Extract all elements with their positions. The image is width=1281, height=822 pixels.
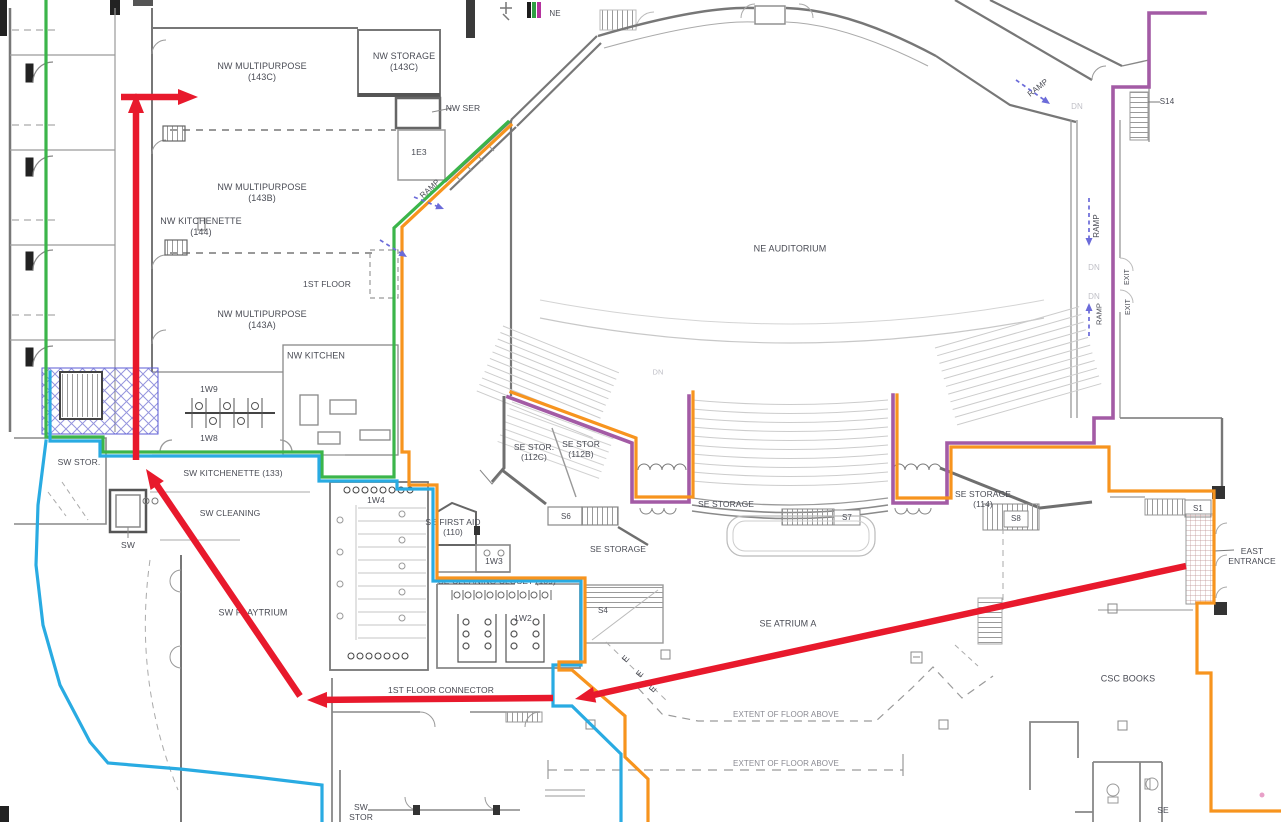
room-labels-layer: NENW MULTIPURPOSE (143C)NW STORAGE (143C…: [0, 0, 1281, 822]
label-se-storage-114: SE STORAGE (114): [955, 489, 1011, 509]
label-nw-storage-143c: NW STORAGE (143C): [373, 51, 435, 73]
label-extent-of-floor-above-upper: EXTENT OF FLOOR ABOVE: [733, 710, 839, 720]
label-nw-kitchenette-144: NW KITCHENETTE (144): [160, 216, 241, 238]
label-se-storage-south: SE STORAGE: [590, 544, 646, 554]
label-room-1w9: 1W9: [200, 384, 218, 394]
label-sw-cleaning: SW CLEANING: [200, 508, 261, 518]
label-east-entrance: EAST ENTRANCE: [1228, 546, 1276, 566]
label-room-1e3: 1E3: [411, 147, 426, 157]
label-s8: S8: [1011, 514, 1021, 524]
label-dn-east-2: DN: [1088, 292, 1100, 302]
label-nw-ser: NW SER: [446, 103, 481, 113]
label-sw-stor-bottom: SW STOR: [349, 802, 373, 822]
label-exit-lower: EXIT: [1125, 299, 1133, 315]
label-sw-kitchenette-133: SW KITCHENETTE (133): [183, 468, 282, 478]
label-first-floor-connector: 1ST FLOOR CONNECTOR: [388, 685, 494, 695]
label-room-1w8: 1W8: [200, 433, 218, 443]
label-grid-e-1: E: [620, 653, 632, 665]
label-room-1w3: 1W3: [485, 556, 503, 566]
label-dn-east-1: DN: [1088, 263, 1100, 273]
label-room-1w4: 1W4: [367, 495, 385, 505]
label-s14: S14: [1160, 97, 1175, 107]
label-se-storage-mid: SE STORAGE: [698, 499, 754, 509]
label-s1: S1: [1193, 504, 1203, 514]
label-nw-multipurpose-143a: NW MULTIPURPOSE (143A): [217, 309, 306, 331]
label-s4: S4: [598, 606, 608, 616]
label-sw-elevator: SW: [121, 540, 135, 550]
label-nw-kitchen: NW KITCHEN: [287, 351, 345, 362]
label-ramp-east-lower: RAMP: [1095, 303, 1104, 325]
label-grid-e-3: E: [647, 683, 659, 695]
label-nw-multipurpose-143c: NW MULTIPURPOSE (143C): [217, 61, 306, 83]
label-csc-books: CSC BOOKS: [1101, 674, 1155, 685]
label-nw-multipurpose-143b: NW MULTIPURPOSE (143B): [217, 182, 306, 204]
label-s7: S7: [842, 513, 852, 523]
label-ramp-nw: RAMP: [418, 178, 442, 201]
label-dn-ne: DN: [1071, 102, 1083, 112]
label-se-stor-112c: SE STOR. (112C): [514, 442, 554, 462]
label-room-1w2: 1W2: [514, 613, 532, 623]
floor-plan-canvas: NENW MULTIPURPOSE (143C)NW STORAGE (143C…: [0, 0, 1281, 822]
label-dn-auditorium: DN: [652, 368, 663, 377]
label-se-atrium-a: SE ATRIUM A: [760, 619, 817, 630]
label-se-bottom: SE: [1157, 805, 1169, 815]
label-se-stor-112b: SE STOR (112B): [562, 439, 600, 459]
label-ne-auditorium: NE AUDITORIUM: [754, 244, 827, 255]
label-ramp-ne: RAMP: [1026, 77, 1050, 99]
label-se-first-aid-110: SE FIRST AID (110): [425, 517, 480, 537]
label-s6: S6: [561, 512, 571, 522]
label-extent-of-floor-above-lower: EXTENT OF FLOOR ABOVE: [733, 759, 839, 769]
label-first-floor: 1ST FLOOR: [303, 279, 351, 289]
label-se-cleaning-closet-109: SE CLEANING CLOSET (109): [438, 576, 556, 586]
label-ramp-east-upper: RAMP: [1092, 214, 1102, 238]
label-sw-playtrium: SW PLAYTRIUM: [218, 608, 287, 619]
label-exit-upper: EXIT: [1124, 269, 1132, 285]
label-grid-e-2: E: [634, 668, 646, 680]
label-sw-stor: SW STOR.: [58, 457, 101, 467]
label-ne-corner: NE: [549, 9, 560, 19]
